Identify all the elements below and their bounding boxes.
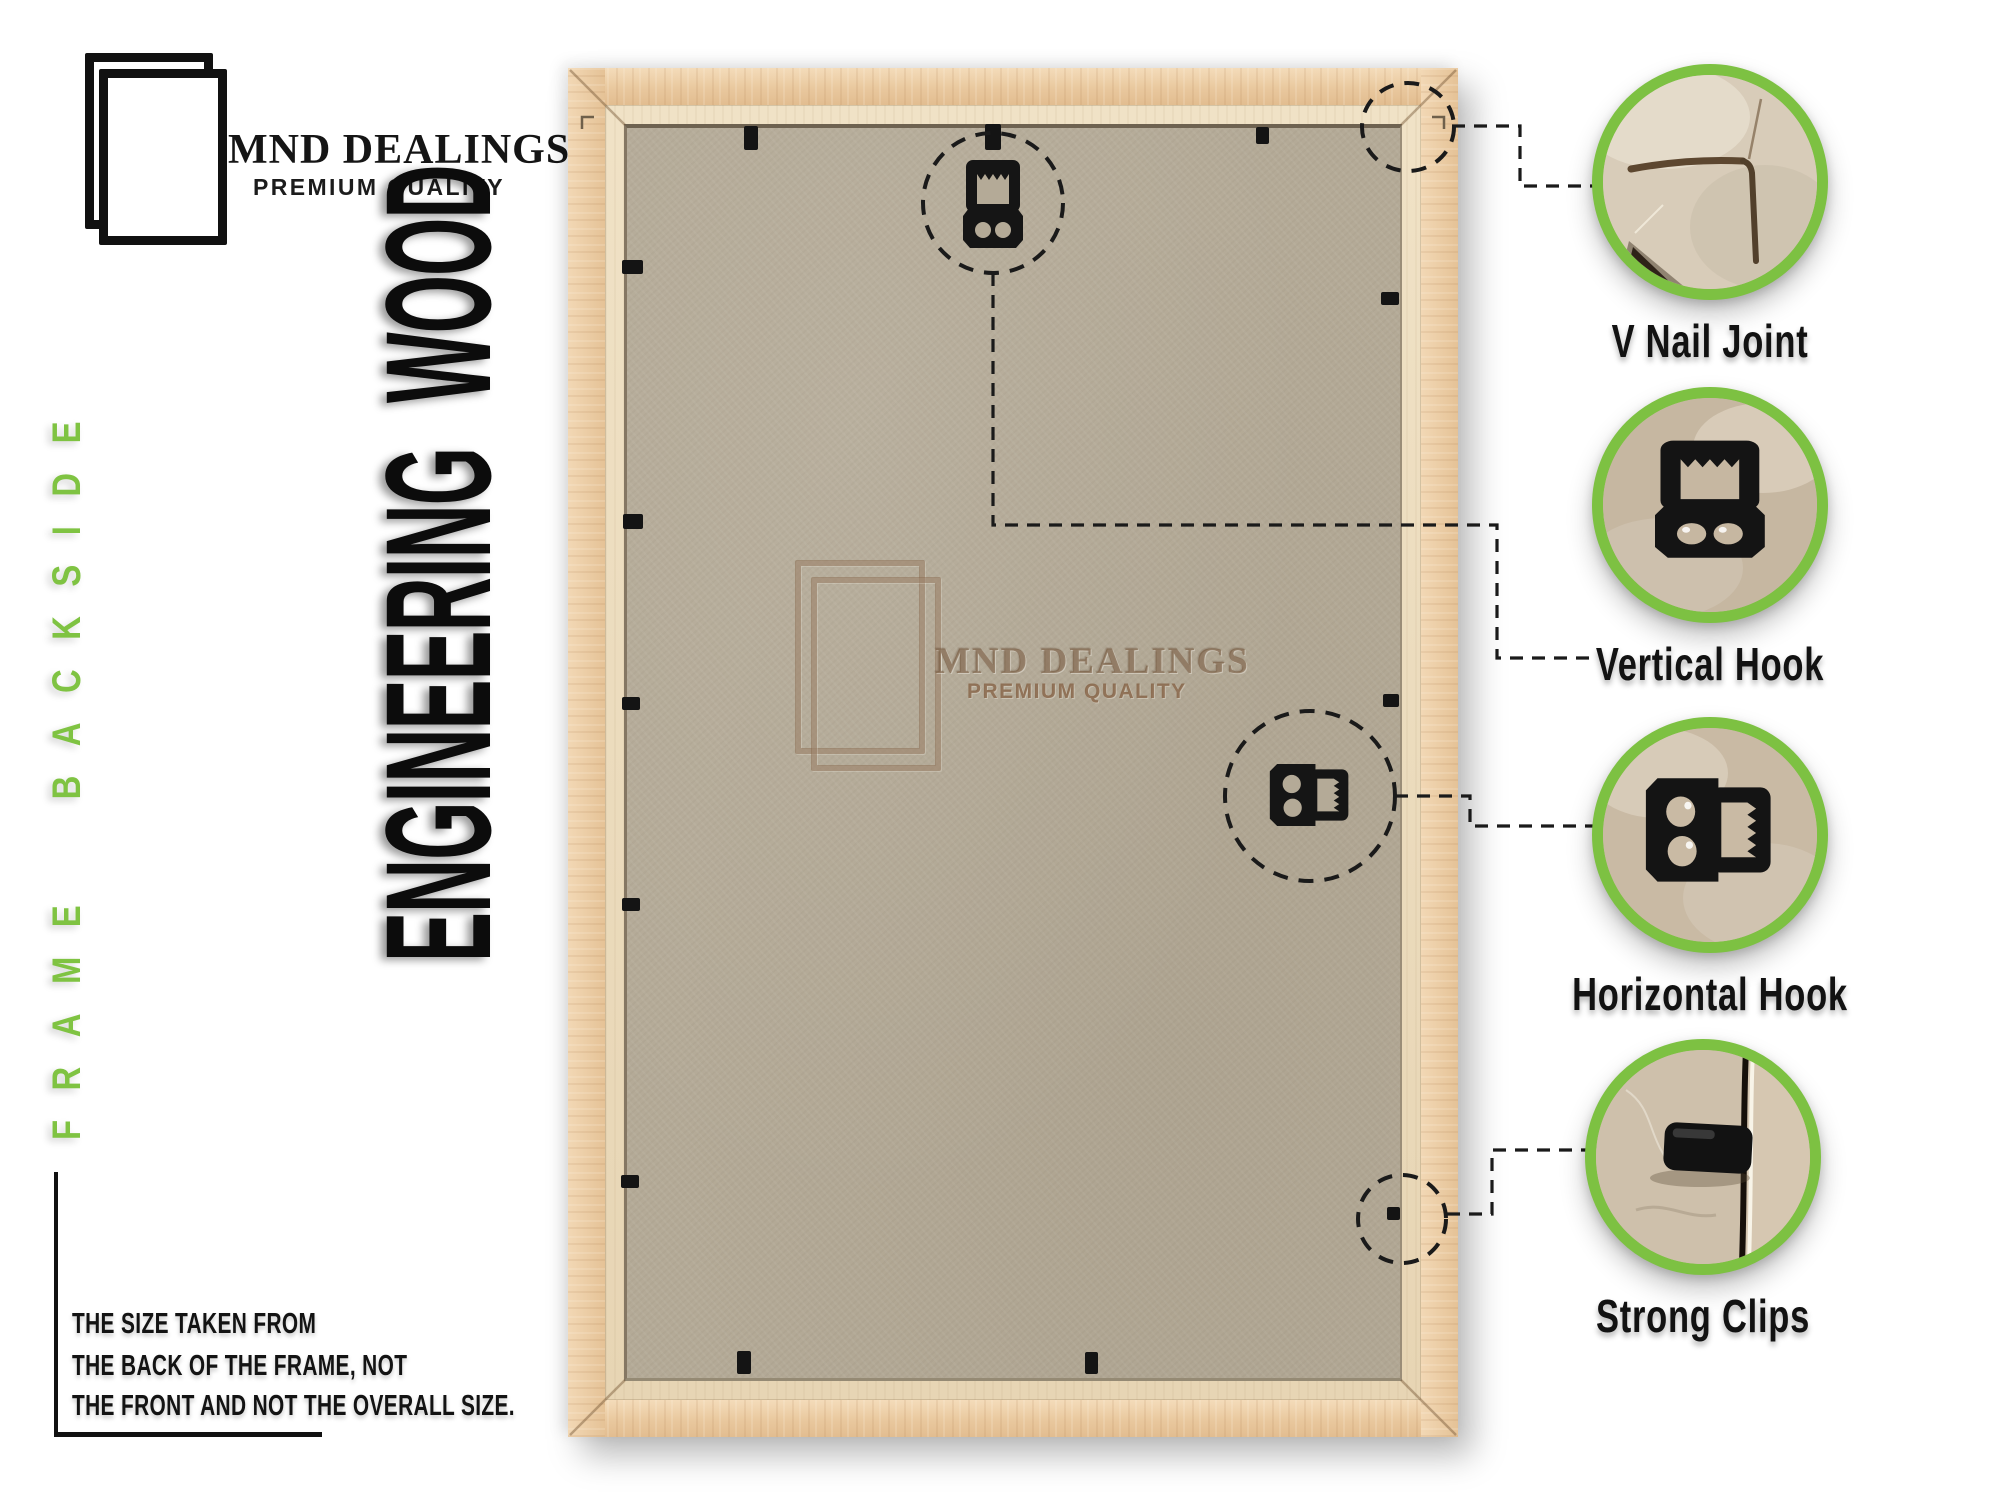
horizontal-hook-icon: [1268, 750, 1352, 840]
callout-label-strong-clips: Strong Clips: [1596, 1289, 1810, 1343]
frame-wood-left: [568, 68, 605, 1437]
horizontal-hook-photo: [1592, 717, 1828, 953]
callout-vertical-hook: Vertical Hook: [1592, 387, 1828, 623]
vertical-hook-large-icon: [1603, 398, 1817, 612]
strong-clips-photo: [1585, 1039, 1821, 1275]
frame-backside-vertical-label: FRAME BACKSIDE: [45, 392, 90, 1140]
strong-clip-large-icon: [1596, 1050, 1810, 1264]
v-nail-joint-photo: [1592, 64, 1828, 300]
vertical-hook-photo: [1592, 387, 1828, 623]
watermark-tagline: PREMIUM QUALITY: [967, 680, 1187, 704]
engineering-wood-headline: ENGINEERING WOOD: [352, 165, 525, 962]
watermark-brand-name: MND DEALINGS: [935, 640, 1250, 683]
callout-label-horizontal-hook: Horizontal Hook: [1572, 967, 1848, 1021]
note-line-1: THE SIZE TAKEN FROM: [72, 1308, 316, 1341]
callout-label-v-nail-joint: V Nail Joint: [1612, 314, 1809, 368]
horizontal-hook-large-icon: [1603, 728, 1817, 942]
watermark-frame-outline-front-icon: [811, 577, 941, 771]
callout-strong-clips: Strong Clips: [1585, 1039, 1821, 1275]
brand-logo-icon: [85, 53, 225, 233]
callout-v-nail-joint: V Nail Joint: [1592, 64, 1828, 300]
frame-wood-right: [1421, 68, 1458, 1437]
note-line-3: THE FRONT AND NOT THE OVERALL SIZE.: [72, 1390, 515, 1423]
note-line-2: THE BACK OF THE FRAME, NOT: [72, 1350, 407, 1383]
frame-outline-front-icon: [99, 69, 227, 245]
note-bracket-vertical-line: [54, 1172, 58, 1436]
callout-horizontal-hook: Horizontal Hook: [1592, 717, 1828, 953]
callout-label-vertical-hook: Vertical Hook: [1596, 637, 1824, 691]
frame-backside-infographic: MND DEALINGS PREMIUM QUALITY FRAME BACKS…: [0, 0, 2000, 1500]
note-bracket-horizontal-line: [54, 1432, 322, 1437]
vertical-hook-icon: [963, 158, 1023, 250]
frame-wood-bottom: [568, 1400, 1458, 1437]
v-nail-joint-icon: [1603, 75, 1817, 289]
frame-wood-top: [568, 68, 1458, 105]
